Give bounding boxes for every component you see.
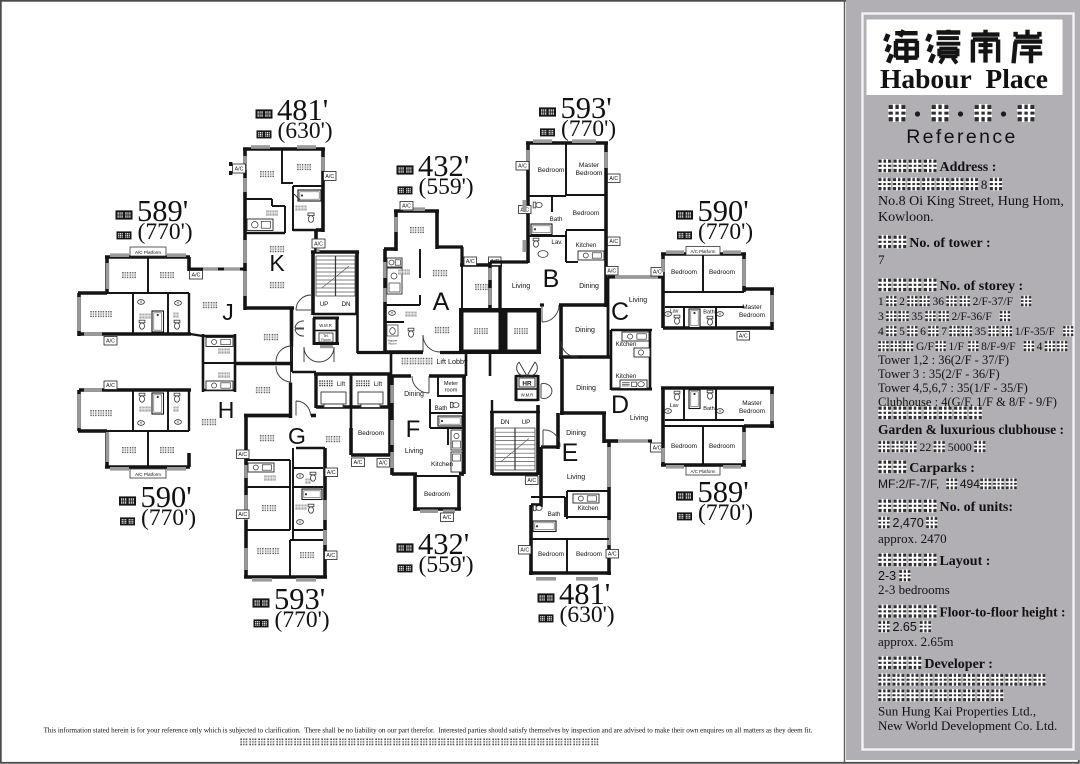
svg-text:A/C: A/C <box>192 273 201 279</box>
svg-text:Living: Living <box>630 415 648 422</box>
svg-text:Tower 4,5,6,7 : 35(1/F - 35/F): Tower 4,5,6,7 : 35(1/F - 35/F) <box>878 381 1028 395</box>
svg-text:7: 7 <box>878 252 885 267</box>
svg-text:A/C: A/C <box>443 515 452 521</box>
svg-text:H: H <box>218 397 235 423</box>
svg-text:(630'): (630') <box>278 118 333 144</box>
svg-text:Kitchen: Kitchen <box>578 505 599 512</box>
svg-text:Bedroom: Bedroom <box>538 551 564 558</box>
svg-text:Garden & luxurious clubhouse :: Garden & luxurious clubhouse : <box>878 422 1064 437</box>
svg-text:A/C: A/C <box>326 553 335 559</box>
svg-text:A/C: A/C <box>609 239 618 245</box>
svg-text:A/C: A/C <box>518 164 527 170</box>
svg-text:A/C: A/C <box>739 334 748 340</box>
svg-text:7: 7 <box>941 326 947 338</box>
svg-text:A/C: A/C <box>402 204 411 210</box>
svg-text:A/C: A/C <box>608 552 617 558</box>
svg-text:Master: Master <box>579 162 600 169</box>
svg-text:W.M.R: W.M.R <box>521 393 534 398</box>
svg-text:Tower 1,2 : 36(2/F - 37/F): Tower 1,2 : 36(2/F - 37/F) <box>878 353 1009 367</box>
svg-text:A/C: A/C <box>327 470 336 476</box>
svg-text:A/C: A/C <box>653 445 662 451</box>
svg-text:HR: HR <box>522 380 532 387</box>
svg-text:2.65: 2.65 <box>892 620 916 634</box>
svg-text:Bedroom: Bedroom <box>358 430 384 437</box>
svg-text:UP: UP <box>522 419 531 426</box>
svg-text:J: J <box>222 299 234 325</box>
svg-text:2/F-36/F: 2/F-36/F <box>952 311 992 323</box>
svg-text:22: 22 <box>919 440 931 454</box>
svg-text:A/C: A/C <box>379 461 388 467</box>
svg-text:A/C: A/C <box>235 166 244 172</box>
svg-text:Room: Room <box>321 338 330 342</box>
svg-text:Room: Room <box>388 342 397 346</box>
svg-text:K: K <box>269 250 285 276</box>
svg-text:Bedroom: Bedroom <box>424 491 450 498</box>
svg-text:C: C <box>611 298 629 326</box>
svg-text:6: 6 <box>920 326 926 338</box>
svg-text:A/C: A/C <box>106 339 115 345</box>
svg-text:Bath: Bath <box>550 216 563 223</box>
svg-text:Dining: Dining <box>404 391 424 398</box>
svg-text:Kowloon.: Kowloon. <box>878 210 934 225</box>
svg-text:Bath: Bath <box>703 406 715 412</box>
svg-text:F: F <box>406 416 421 443</box>
svg-text:Bedroom: Bedroom <box>739 312 765 319</box>
svg-text:Bedroom: Bedroom <box>538 167 565 174</box>
svg-text:G: G <box>288 423 306 449</box>
svg-text:A/C: A/C <box>238 512 247 518</box>
svg-text:New World Development Co. Ltd.: New World Development Co. Ltd. <box>878 718 1057 733</box>
svg-text:2-3: 2-3 <box>878 569 896 583</box>
svg-text:Living: Living <box>629 297 647 304</box>
svg-text:8/F-9/F: 8/F-9/F <box>981 341 1016 353</box>
svg-text:A/C: A/C <box>520 548 529 554</box>
svg-text:Carparks :: Carparks : <box>909 461 975 476</box>
svg-text:(630'): (630') <box>560 602 615 628</box>
svg-text:Bath: Bath <box>548 511 561 518</box>
svg-text:Dining: Dining <box>566 430 586 437</box>
svg-text:(770'): (770') <box>138 219 193 245</box>
svg-text:2/F-37/F: 2/F-37/F <box>973 296 1013 308</box>
svg-text:UP: UP <box>320 301 329 308</box>
svg-text:Bedroom: Bedroom <box>576 551 602 558</box>
svg-text:Reference: Reference <box>906 126 1018 148</box>
svg-text:No.8 Oi King Street, Hung Hom,: No.8 Oi King Street, Hung Hom, <box>878 194 1064 209</box>
svg-text:Master: Master <box>742 304 762 311</box>
svg-text:Lift: Lift <box>374 381 383 388</box>
svg-text:Bedroom: Bedroom <box>576 170 603 177</box>
svg-text:4: 4 <box>1037 341 1043 353</box>
svg-text:2: 2 <box>899 296 905 308</box>
svg-text:room: room <box>445 388 458 394</box>
svg-text:Bedroom: Bedroom <box>709 443 735 450</box>
svg-text:Dining: Dining <box>575 327 595 334</box>
svg-text:A/C: A/C <box>607 269 616 275</box>
svg-text:No. of units:: No. of units: <box>939 500 1013 515</box>
svg-text:Kitchen: Kitchen <box>616 341 637 348</box>
svg-text:A/C: A/C <box>354 460 363 466</box>
svg-text:35: 35 <box>911 311 923 323</box>
svg-text:2-3 bedrooms: 2-3 bedrooms <box>878 582 950 597</box>
svg-text:36: 36 <box>932 296 944 308</box>
svg-text:Dining: Dining <box>576 385 596 392</box>
svg-text:Layout :: Layout : <box>939 554 990 569</box>
svg-text:approx. 2470: approx. 2470 <box>878 531 947 546</box>
svg-text:E: E <box>562 439 579 467</box>
svg-text:approx. 2.65m: approx. 2.65m <box>878 634 953 649</box>
svg-text:Floor-to-floor height :: Floor-to-floor height : <box>939 605 1065 620</box>
svg-text:1: 1 <box>878 296 884 308</box>
svg-text:Lav.: Lav. <box>551 239 563 246</box>
svg-text:D: D <box>611 391 629 419</box>
svg-text:MF:2/F-7/F,: MF:2/F-7/F, <box>878 477 939 491</box>
svg-text:3: 3 <box>878 311 884 323</box>
svg-text:A/C: A/C <box>314 241 323 247</box>
svg-text:A/C Platform: A/C Platform <box>135 472 161 477</box>
svg-text:A/C: A/C <box>238 452 247 458</box>
svg-text:Bedroom: Bedroom <box>709 269 735 276</box>
svg-text:Habour Place: Habour Place <box>880 63 1048 94</box>
svg-text:(770'): (770') <box>141 505 196 531</box>
svg-text:A/C: A/C <box>106 383 115 389</box>
svg-text:No. of tower :: No. of tower : <box>909 236 990 251</box>
svg-text:5: 5 <box>899 326 905 338</box>
svg-text:DN: DN <box>342 301 351 308</box>
svg-text:5000: 5000 <box>948 440 972 454</box>
svg-text:Lav: Lav <box>669 403 678 409</box>
svg-text:Lift Lobby: Lift Lobby <box>436 357 468 366</box>
svg-text:(770'): (770') <box>698 219 753 245</box>
svg-text:Meter: Meter <box>444 381 458 387</box>
svg-text:8: 8 <box>981 177 988 192</box>
svg-text:W.M.R: W.M.R <box>319 323 332 328</box>
svg-text:Living: Living <box>512 283 530 290</box>
svg-text:Bedroom: Bedroom <box>671 443 697 450</box>
svg-text:No. of storey :: No. of storey : <box>939 279 1023 294</box>
svg-text:2,470: 2,470 <box>892 516 923 530</box>
svg-text:A/C Platform: A/C Platform <box>135 250 161 255</box>
svg-text:Bedroom: Bedroom <box>739 408 765 415</box>
svg-text:A/C: A/C <box>609 176 618 182</box>
svg-text:Dining: Dining <box>579 283 599 290</box>
svg-text:DN: DN <box>501 419 510 426</box>
svg-text:Kitchen: Kitchen <box>576 242 597 249</box>
svg-text:(559'): (559') <box>419 552 474 578</box>
svg-text:Address :: Address : <box>939 160 996 175</box>
svg-text:Kitchen: Kitchen <box>431 461 453 468</box>
svg-text:(770'): (770') <box>275 607 330 633</box>
svg-text:G/F: G/F <box>916 341 934 353</box>
svg-text:Living: Living <box>405 448 423 455</box>
svg-text:Kitchen: Kitchen <box>616 373 637 380</box>
svg-text:Living: Living <box>567 474 585 481</box>
svg-text:35: 35 <box>975 326 987 338</box>
svg-text:Bedroom: Bedroom <box>671 269 697 276</box>
svg-text:(770'): (770') <box>698 500 753 526</box>
svg-text:A/C: A/C <box>527 478 536 484</box>
svg-text:4: 4 <box>878 326 884 338</box>
svg-text:A/C Platform: A/C Platform <box>691 249 716 254</box>
svg-text:Bath: Bath <box>703 310 715 316</box>
svg-text:A/C: A/C <box>466 259 475 265</box>
svg-text:A/C: A/C <box>325 174 334 180</box>
svg-text:1/F: 1/F <box>949 341 964 353</box>
svg-text:Tower 3 : 35(2/F - 36/F): Tower 3 : 35(2/F - 36/F) <box>878 367 1000 381</box>
svg-text:494: 494 <box>960 477 980 491</box>
svg-text:A: A <box>433 288 450 316</box>
svg-text:Lift: Lift <box>337 381 346 388</box>
svg-text:A/C Platform: A/C Platform <box>691 469 716 474</box>
svg-text:A/C: A/C <box>653 270 662 276</box>
svg-text:1/F-35/F: 1/F-35/F <box>1015 326 1055 338</box>
svg-text:Master: Master <box>742 400 762 407</box>
svg-text:This information stated herein: This information stated herein is for yo… <box>44 727 813 735</box>
svg-text:Bath: Bath <box>435 405 448 412</box>
svg-text:(559'): (559') <box>419 174 474 200</box>
svg-text:Bedroom: Bedroom <box>573 210 600 217</box>
svg-text:B: B <box>543 265 560 293</box>
svg-text:(770'): (770') <box>561 116 616 142</box>
svg-text:Developer :: Developer : <box>924 657 993 672</box>
svg-text:Sun Hung Kai Properties Ltd.,: Sun Hung Kai Properties Ltd., <box>878 704 1036 719</box>
